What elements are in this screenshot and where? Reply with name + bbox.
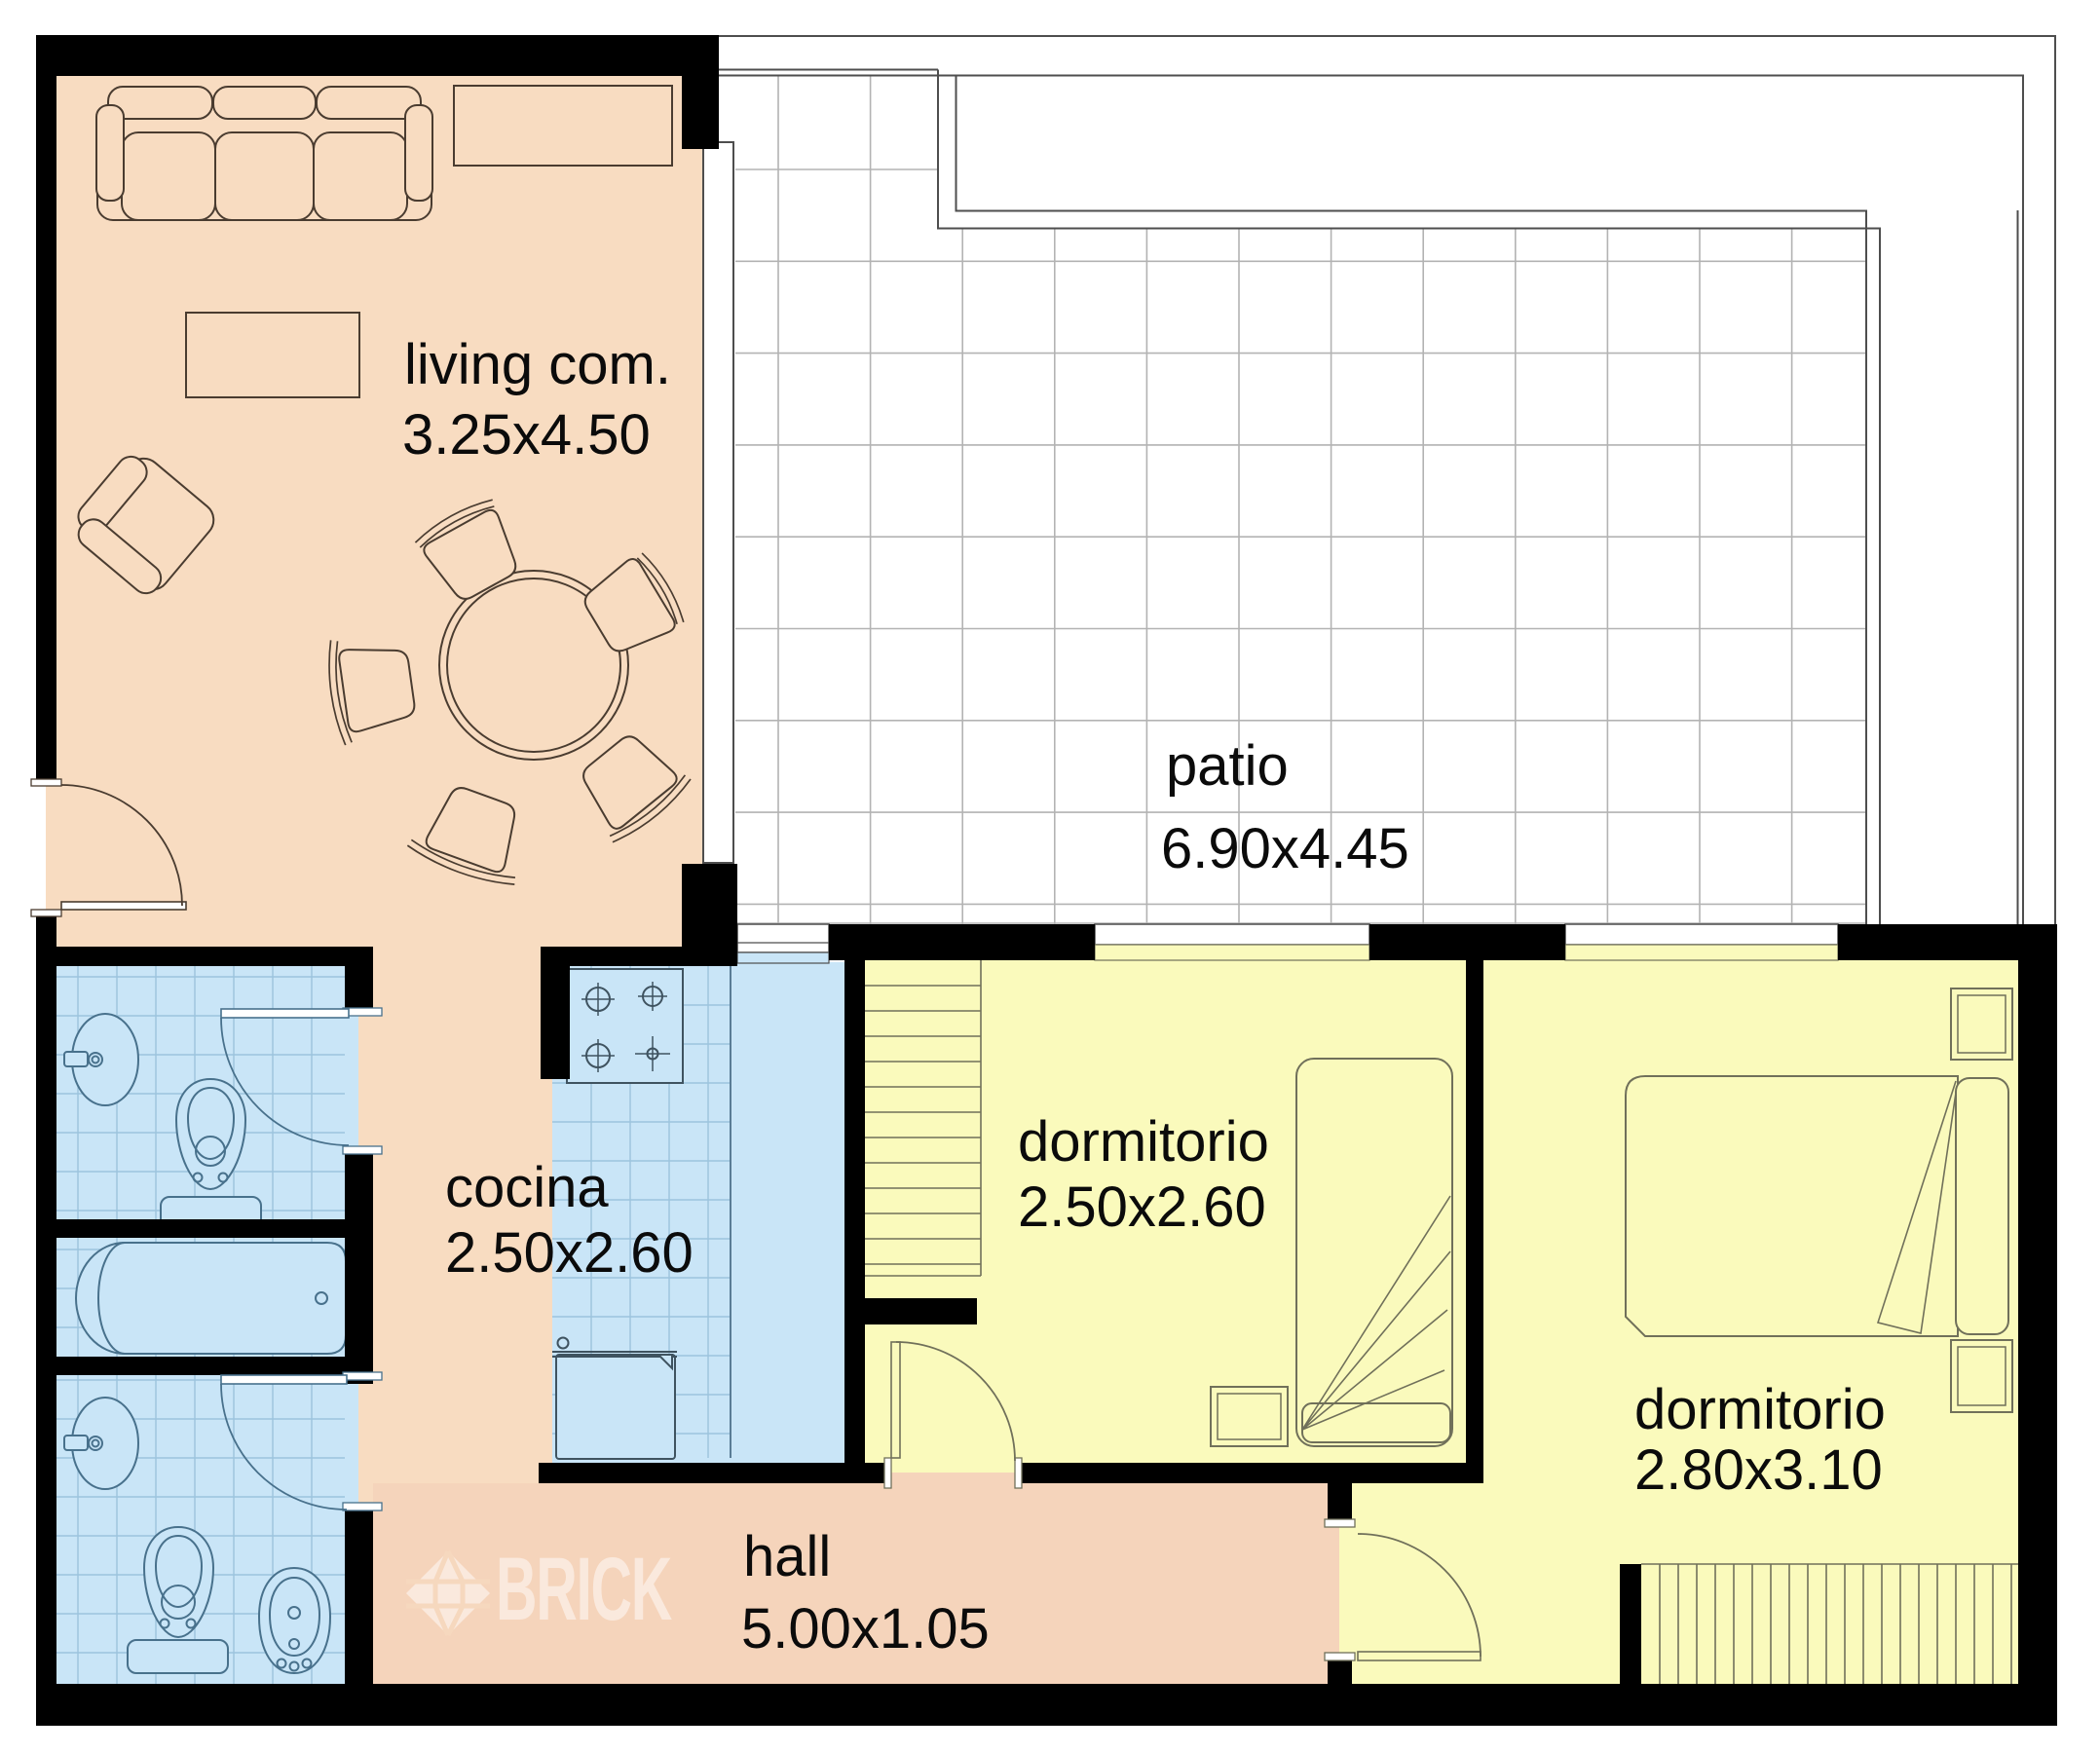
svg-text:2.50x2.60: 2.50x2.60 — [1018, 1175, 1266, 1239]
svg-text:2.50x2.60: 2.50x2.60 — [445, 1221, 694, 1285]
svg-text:2.80x3.10: 2.80x3.10 — [1634, 1438, 1883, 1502]
svg-text:hall: hall — [743, 1525, 831, 1588]
svg-text:6.90x4.45: 6.90x4.45 — [1161, 817, 1409, 880]
svg-text:cocina: cocina — [445, 1156, 609, 1219]
svg-text:living com.: living com. — [404, 333, 671, 396]
svg-text:5.00x1.05: 5.00x1.05 — [741, 1597, 990, 1660]
svg-text:3.25x4.50: 3.25x4.50 — [402, 403, 651, 466]
svg-text:BRICK: BRICK — [496, 1540, 672, 1639]
svg-text:patio: patio — [1166, 734, 1289, 798]
svg-text:dormitorio: dormitorio — [1018, 1110, 1269, 1174]
svg-text:dormitorio: dormitorio — [1634, 1378, 1886, 1441]
